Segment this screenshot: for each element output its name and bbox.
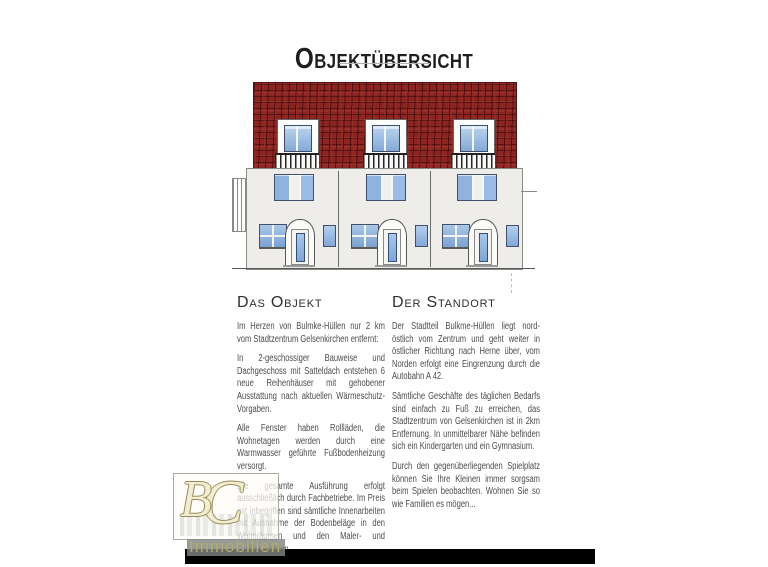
facade — [246, 168, 523, 270]
paragraph: Durch den gegenüberliegenden Spielplatz … — [392, 461, 540, 511]
door-leaf — [474, 229, 492, 265]
ground-floor-window — [442, 224, 470, 249]
door-glass — [296, 233, 305, 262]
paragraph: Alle Fenster haben Rollläden, die Wohnet… — [237, 423, 385, 473]
location-paragraphs: Der Stadtteil Bulkme-Hüllen liegt nord-ö… — [392, 321, 540, 511]
dimension-dashed-tick — [511, 273, 513, 293]
unit-divider — [338, 171, 339, 267]
ground-floor-window — [259, 224, 287, 249]
dormer-glass — [372, 125, 400, 152]
company-logo-watermark: C B — [173, 473, 279, 540]
side-window — [323, 225, 336, 247]
side-window — [415, 225, 428, 247]
dormer-window — [277, 119, 319, 155]
door-leaf — [383, 229, 401, 265]
dormer-glass — [284, 125, 312, 152]
paragraph: In 2-geschossiger Bauweise und Dachgesch… — [237, 353, 385, 416]
upper-floor-window — [366, 174, 406, 201]
entrance-door — [377, 219, 407, 267]
dormer-window — [365, 119, 407, 155]
dimension-tick — [521, 191, 537, 192]
location-section: Der Standort Der Stadtteil Bulkme-Hüllen… — [392, 294, 552, 518]
door-glass — [479, 233, 488, 262]
unit-divider — [430, 171, 431, 267]
dormer-railing — [275, 153, 319, 169]
logo-label: Immobilien — [189, 537, 281, 557]
roof — [253, 82, 517, 170]
entrance-door — [285, 219, 315, 267]
dormer-window — [453, 119, 495, 155]
exposé-page: Objektübersicht — [0, 0, 768, 567]
door-leaf — [291, 229, 309, 265]
ground-line — [232, 268, 535, 269]
side-window — [506, 225, 519, 247]
entrance-door — [468, 219, 498, 267]
upper-floor-window — [457, 174, 497, 201]
object-heading: Das Objekt — [237, 294, 397, 312]
dormer-railing — [363, 153, 407, 169]
door-step — [283, 265, 315, 267]
paragraph: Der Stadtteil Bulkme-Hüllen liegt nord-ö… — [392, 321, 540, 384]
door-step — [466, 265, 498, 267]
door-glass — [388, 233, 397, 262]
title-underline — [339, 63, 430, 64]
ground-floor-window — [351, 224, 379, 249]
dormer-railing — [451, 153, 495, 169]
paragraph: Im Herzen von Bulmke-Hüllen nur 2 km vom… — [237, 321, 385, 346]
page-title: Objektübersicht — [61, 43, 706, 76]
upper-floor-window — [274, 174, 314, 201]
building-elevation-drawing — [230, 80, 540, 298]
location-heading: Der Standort — [392, 294, 552, 312]
dormer-glass — [460, 125, 488, 152]
door-step — [375, 265, 407, 267]
downpipe-drawing — [232, 178, 247, 232]
logo-monogram-b: B — [180, 474, 212, 526]
paragraph: Sämtliche Geschäfte des täglichen Bedarf… — [392, 391, 540, 454]
